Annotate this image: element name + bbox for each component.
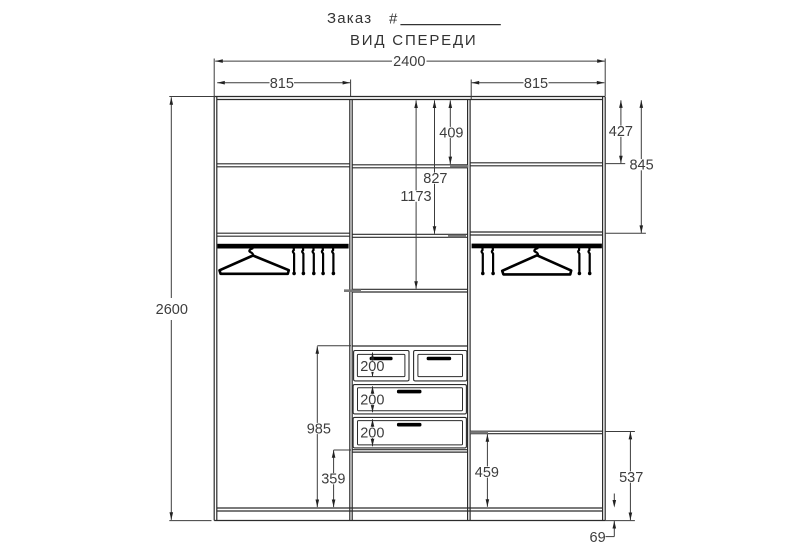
svg-text:2600: 2600 (156, 302, 188, 318)
svg-text:827: 827 (423, 171, 447, 187)
svg-text:ВИД СПЕРЕДИ: ВИД СПЕРЕДИ (350, 32, 477, 49)
svg-text:2400: 2400 (393, 54, 425, 70)
svg-text:1173: 1173 (400, 189, 431, 205)
svg-text:459: 459 (475, 465, 499, 481)
svg-text:#: # (389, 10, 398, 27)
svg-text:69: 69 (590, 530, 606, 546)
svg-text:359: 359 (321, 472, 345, 488)
svg-text:200: 200 (360, 425, 384, 441)
svg-text:815: 815 (270, 76, 294, 92)
svg-text:200: 200 (360, 392, 384, 408)
svg-text:845: 845 (629, 158, 653, 174)
svg-text:409: 409 (439, 125, 463, 141)
svg-text:200: 200 (360, 359, 384, 375)
svg-text:427: 427 (609, 124, 633, 140)
svg-text:985: 985 (307, 421, 331, 437)
svg-text:815: 815 (524, 76, 548, 92)
svg-text:537: 537 (619, 470, 643, 486)
svg-text:Заказ: Заказ (327, 10, 372, 27)
